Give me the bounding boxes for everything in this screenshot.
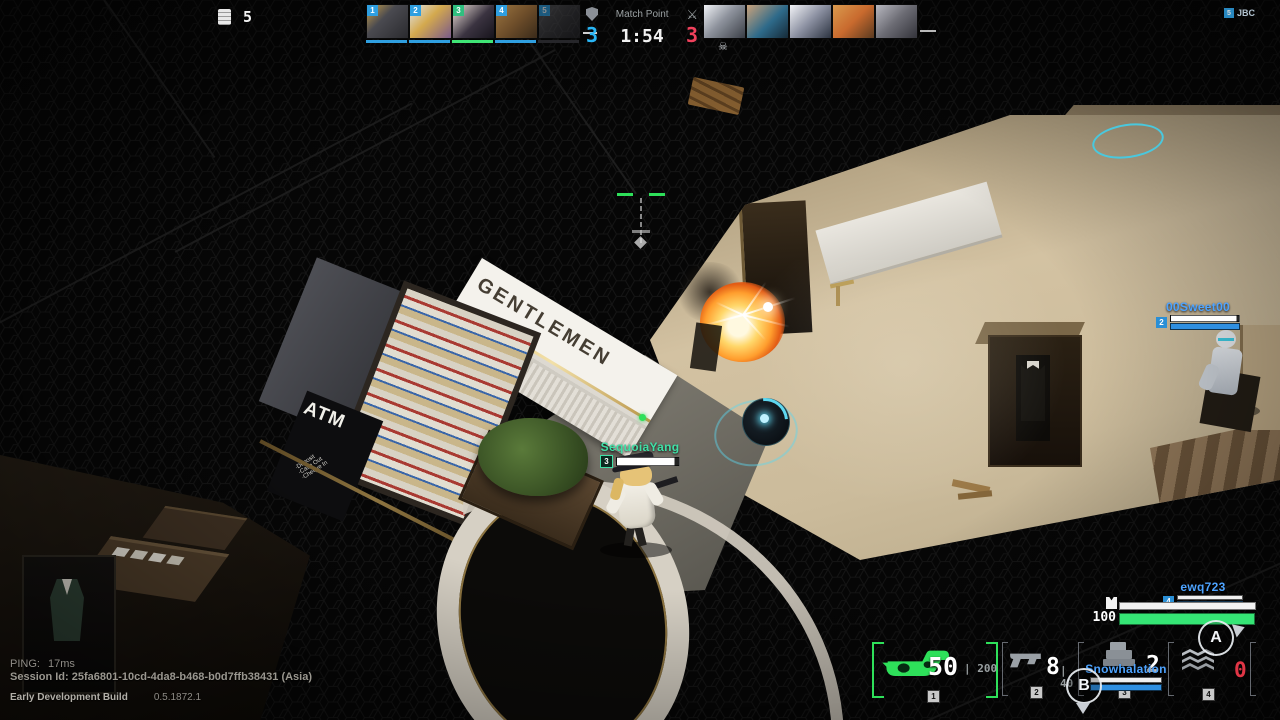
character-shadow xyxy=(600,542,672,558)
site-a-marker: A xyxy=(1198,620,1234,656)
enemy-score: 3 xyxy=(686,23,698,47)
orb-core xyxy=(760,414,769,423)
teammate-health-bar xyxy=(1177,595,1243,600)
barricade-count: 0 xyxy=(1234,658,1247,682)
player-nameplate: SequoiaYang 3 xyxy=(545,440,735,468)
ally-number-badge: 4 xyxy=(496,5,507,16)
ping-row: PING: 17ms xyxy=(10,658,312,670)
debug-info: PING: 17ms Session Id: 25fa6801-10cd-4da… xyxy=(10,658,312,703)
suit-collar xyxy=(62,579,72,595)
build-row: Early Development Build 0.5.1872.1 xyxy=(10,692,312,703)
green-suit xyxy=(50,579,84,641)
ally-slot: 3 xyxy=(452,4,493,43)
enemy-armor-bar xyxy=(1170,323,1240,330)
enemy-nameplate: 00Sweet00 2 xyxy=(1128,300,1268,330)
ally-number-badge: 1 xyxy=(367,5,378,16)
ally-avatar: 2 xyxy=(409,4,452,39)
armor-bar xyxy=(1119,602,1256,610)
score-row: 3 1:54 3 xyxy=(586,23,698,47)
enemy-team-bar xyxy=(703,4,916,39)
enemy-name: 00Sweet00 xyxy=(1128,300,1268,314)
ally-score: 3 xyxy=(586,23,598,47)
money-icon xyxy=(218,9,231,25)
slot-divider xyxy=(1250,642,1251,696)
round-timer: 1:54 xyxy=(620,26,663,47)
explosion-effect xyxy=(675,262,835,392)
slot-divider xyxy=(1002,642,1003,696)
game-viewport[interactable]: GENTLEMEN DBP Development Bank of Pala A… xyxy=(0,0,1280,720)
player-level-badge: 3 xyxy=(600,455,613,468)
ally-number-badge: 2 xyxy=(410,5,421,16)
ally-slot: 4 xyxy=(495,4,536,43)
money-value: 5 xyxy=(243,8,252,26)
spectate-level-badge: 5 xyxy=(1224,8,1234,18)
enemy-avatar xyxy=(832,4,875,39)
primary-key: 1 xyxy=(927,690,940,703)
spectate-tag: 5 JBC xyxy=(1224,8,1255,18)
money-counter: 5 xyxy=(218,8,252,26)
ally-health-bar xyxy=(409,40,450,43)
shield-icon xyxy=(586,7,598,21)
enemy-slot xyxy=(789,4,830,39)
ally-slot: 1 xyxy=(366,4,407,43)
player-health-bar xyxy=(616,457,680,466)
enemy-avatar xyxy=(875,4,918,39)
folded-shirt xyxy=(130,550,148,560)
health-value: 100 xyxy=(1090,610,1116,625)
site-b-direction-arrow xyxy=(1076,703,1090,714)
secondary-ammo: 8 xyxy=(1046,654,1060,680)
enemy-health-bar xyxy=(1170,315,1240,322)
spectate-name: JBC xyxy=(1237,8,1255,18)
ally-team-bar: 1 2 3 4 5 xyxy=(366,4,579,43)
ally-avatar: 3 xyxy=(452,4,495,39)
pistol-icon xyxy=(1008,648,1044,672)
enemy-visor xyxy=(1218,338,1234,341)
site-b-marker: B xyxy=(1066,668,1102,704)
match-status-row: Match Point ⚔ xyxy=(586,7,698,21)
player-health-row: 3 xyxy=(545,455,735,468)
build-label: Early Development Build xyxy=(10,692,128,703)
ally-slot: 2 xyxy=(409,4,450,43)
enemy-avatar xyxy=(703,4,746,39)
ping-label: PING: xyxy=(10,658,40,670)
ping-value: 17ms xyxy=(48,658,75,670)
secondary-key: 2 xyxy=(1030,686,1043,699)
trajectory-tick xyxy=(632,230,650,233)
skull-icon: ☠ xyxy=(718,40,728,53)
folded-shirt xyxy=(148,553,166,563)
player-name: SequoiaYang xyxy=(545,440,735,454)
weapon-slot-secondary: 8 | 40 2 xyxy=(1008,640,1074,702)
site-a-label: A xyxy=(1210,629,1222,647)
barricade-key: 4 xyxy=(1202,688,1215,701)
ally-health-bar xyxy=(495,40,536,43)
enemy-avatar xyxy=(746,4,789,39)
aim-dot xyxy=(639,414,646,421)
scoreboard-divider xyxy=(920,30,936,32)
ally-avatar: 1 xyxy=(366,4,409,39)
blast-silhouette xyxy=(690,322,722,371)
ally-avatar: 5 xyxy=(538,4,581,39)
ally-health-bar xyxy=(366,40,407,43)
slot-divider xyxy=(1168,642,1169,696)
enemy-slot xyxy=(832,4,873,39)
crosshair-left-dash xyxy=(617,193,633,196)
ally-number-badge: 3 xyxy=(453,5,464,16)
enemy-bars xyxy=(1170,315,1240,330)
ally-avatar: 4 xyxy=(495,4,538,39)
match-status: Match Point ⚔ 3 1:54 3 xyxy=(586,7,698,47)
weapon-slot-primary: 50 | 200 1 xyxy=(872,640,998,702)
primary-reserve: | 200 xyxy=(964,662,997,675)
ally-health-bar-dead xyxy=(538,40,579,43)
enemy-slot xyxy=(703,4,744,39)
ally-health-bar xyxy=(452,40,493,43)
ally-number-badge: 5 xyxy=(539,5,550,16)
site-b-label: B xyxy=(1078,677,1090,695)
match-point-label: Match Point xyxy=(616,9,669,20)
ally-slot: 5 xyxy=(538,4,579,43)
enemy-slot xyxy=(746,4,787,39)
crosshair-right-dash xyxy=(649,193,665,196)
primary-ammo: 50 xyxy=(928,652,958,681)
session-id: Session Id: 25fa6801-10cd-4da8-b468-b0d7… xyxy=(10,671,312,683)
build-version: 0.5.1872.1 xyxy=(154,692,201,703)
swords-icon: ⚔ xyxy=(686,8,698,21)
enemy-level-badge: 2 xyxy=(1156,317,1167,328)
enemy-health-row: 2 xyxy=(1128,315,1268,330)
teammate-name: ewq723 xyxy=(1148,580,1258,594)
folded-shirt xyxy=(166,555,184,565)
enemy-avatar xyxy=(789,4,832,39)
enemy-slot xyxy=(875,4,916,39)
flash-point xyxy=(763,302,773,312)
